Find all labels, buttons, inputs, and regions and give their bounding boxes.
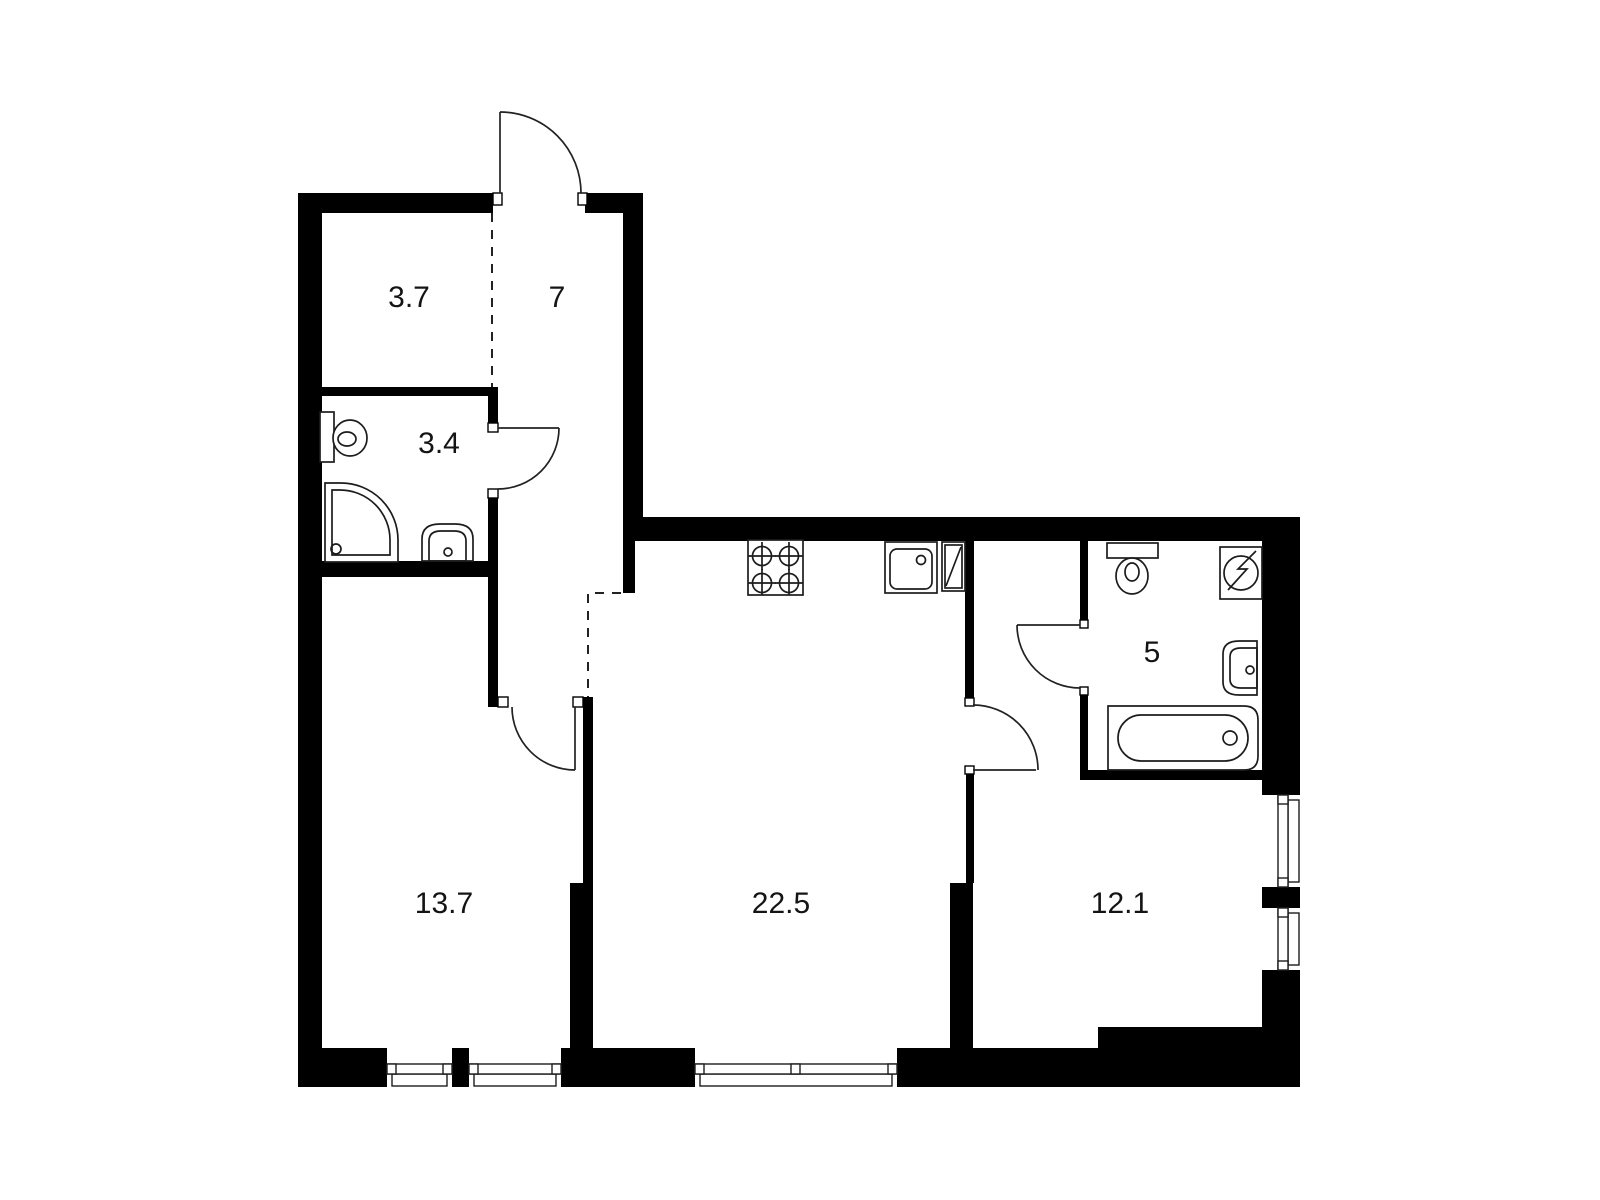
window-frame-tick xyxy=(1278,961,1288,970)
wall-segment xyxy=(965,541,974,698)
window-frame-tick xyxy=(1278,878,1288,887)
label-bathroom-small: 3.4 xyxy=(418,427,460,460)
door-swing-arc xyxy=(500,112,581,193)
window-frame xyxy=(387,1064,452,1074)
room-left xyxy=(322,577,583,1048)
bottom-window-2 xyxy=(469,1048,561,1087)
window-sill xyxy=(1288,913,1299,965)
window-frame xyxy=(1278,795,1288,887)
window-frame xyxy=(469,1064,561,1074)
window-sill xyxy=(700,1074,892,1086)
label-hallway: 7 xyxy=(549,281,566,314)
label-kitchen-living: 22.5 xyxy=(752,887,810,920)
room-areas xyxy=(322,213,1262,1048)
wall-segment xyxy=(585,193,643,213)
floor-plan: 3.7 7 3.4 13.7 22.5 5 12.1 xyxy=(0,0,1600,1200)
window-frame-tick xyxy=(387,1064,396,1074)
wall-segment xyxy=(966,774,974,883)
wall-segment xyxy=(298,193,322,1087)
window-frame-tick xyxy=(791,1064,800,1074)
wall-segment xyxy=(322,561,488,577)
window-frame-tick xyxy=(469,1064,478,1074)
label-room-right: 12.1 xyxy=(1091,887,1149,920)
jamb xyxy=(965,698,974,706)
wall-segment xyxy=(583,697,593,883)
right-window-tall xyxy=(1262,795,1300,887)
wall-segment xyxy=(298,193,493,213)
room-bathroom-small xyxy=(322,396,488,561)
window-frame-tick xyxy=(1278,908,1288,917)
jamb xyxy=(493,193,502,205)
floor-plan-svg: 3.7 7 3.4 13.7 22.5 5 12.1 xyxy=(0,0,1600,1200)
window-frame-tick xyxy=(443,1064,452,1074)
bottom-window-1 xyxy=(387,1048,452,1087)
label-closet-top-left: 3.7 xyxy=(388,281,430,314)
window-frame-tick xyxy=(552,1064,561,1074)
window-frame-tick xyxy=(888,1064,897,1074)
wall-segment xyxy=(623,213,643,517)
room-kitchen-living xyxy=(593,541,965,1048)
jamb xyxy=(965,766,974,774)
window-frame-tick xyxy=(695,1064,704,1074)
wall-segment xyxy=(322,387,488,396)
entrance-door xyxy=(500,112,581,193)
wall-segment xyxy=(623,517,1300,541)
label-room-left: 13.7 xyxy=(415,887,473,920)
bottom-window-wide xyxy=(695,1048,897,1087)
right-window-short xyxy=(1262,908,1300,970)
window-sill xyxy=(1288,800,1299,882)
window-sill xyxy=(392,1074,447,1086)
window-frame-tick xyxy=(1278,795,1288,804)
jamb xyxy=(578,193,587,205)
window-sill xyxy=(474,1074,556,1086)
room-right xyxy=(974,541,1262,1048)
label-bathroom-large: 5 xyxy=(1144,636,1161,669)
